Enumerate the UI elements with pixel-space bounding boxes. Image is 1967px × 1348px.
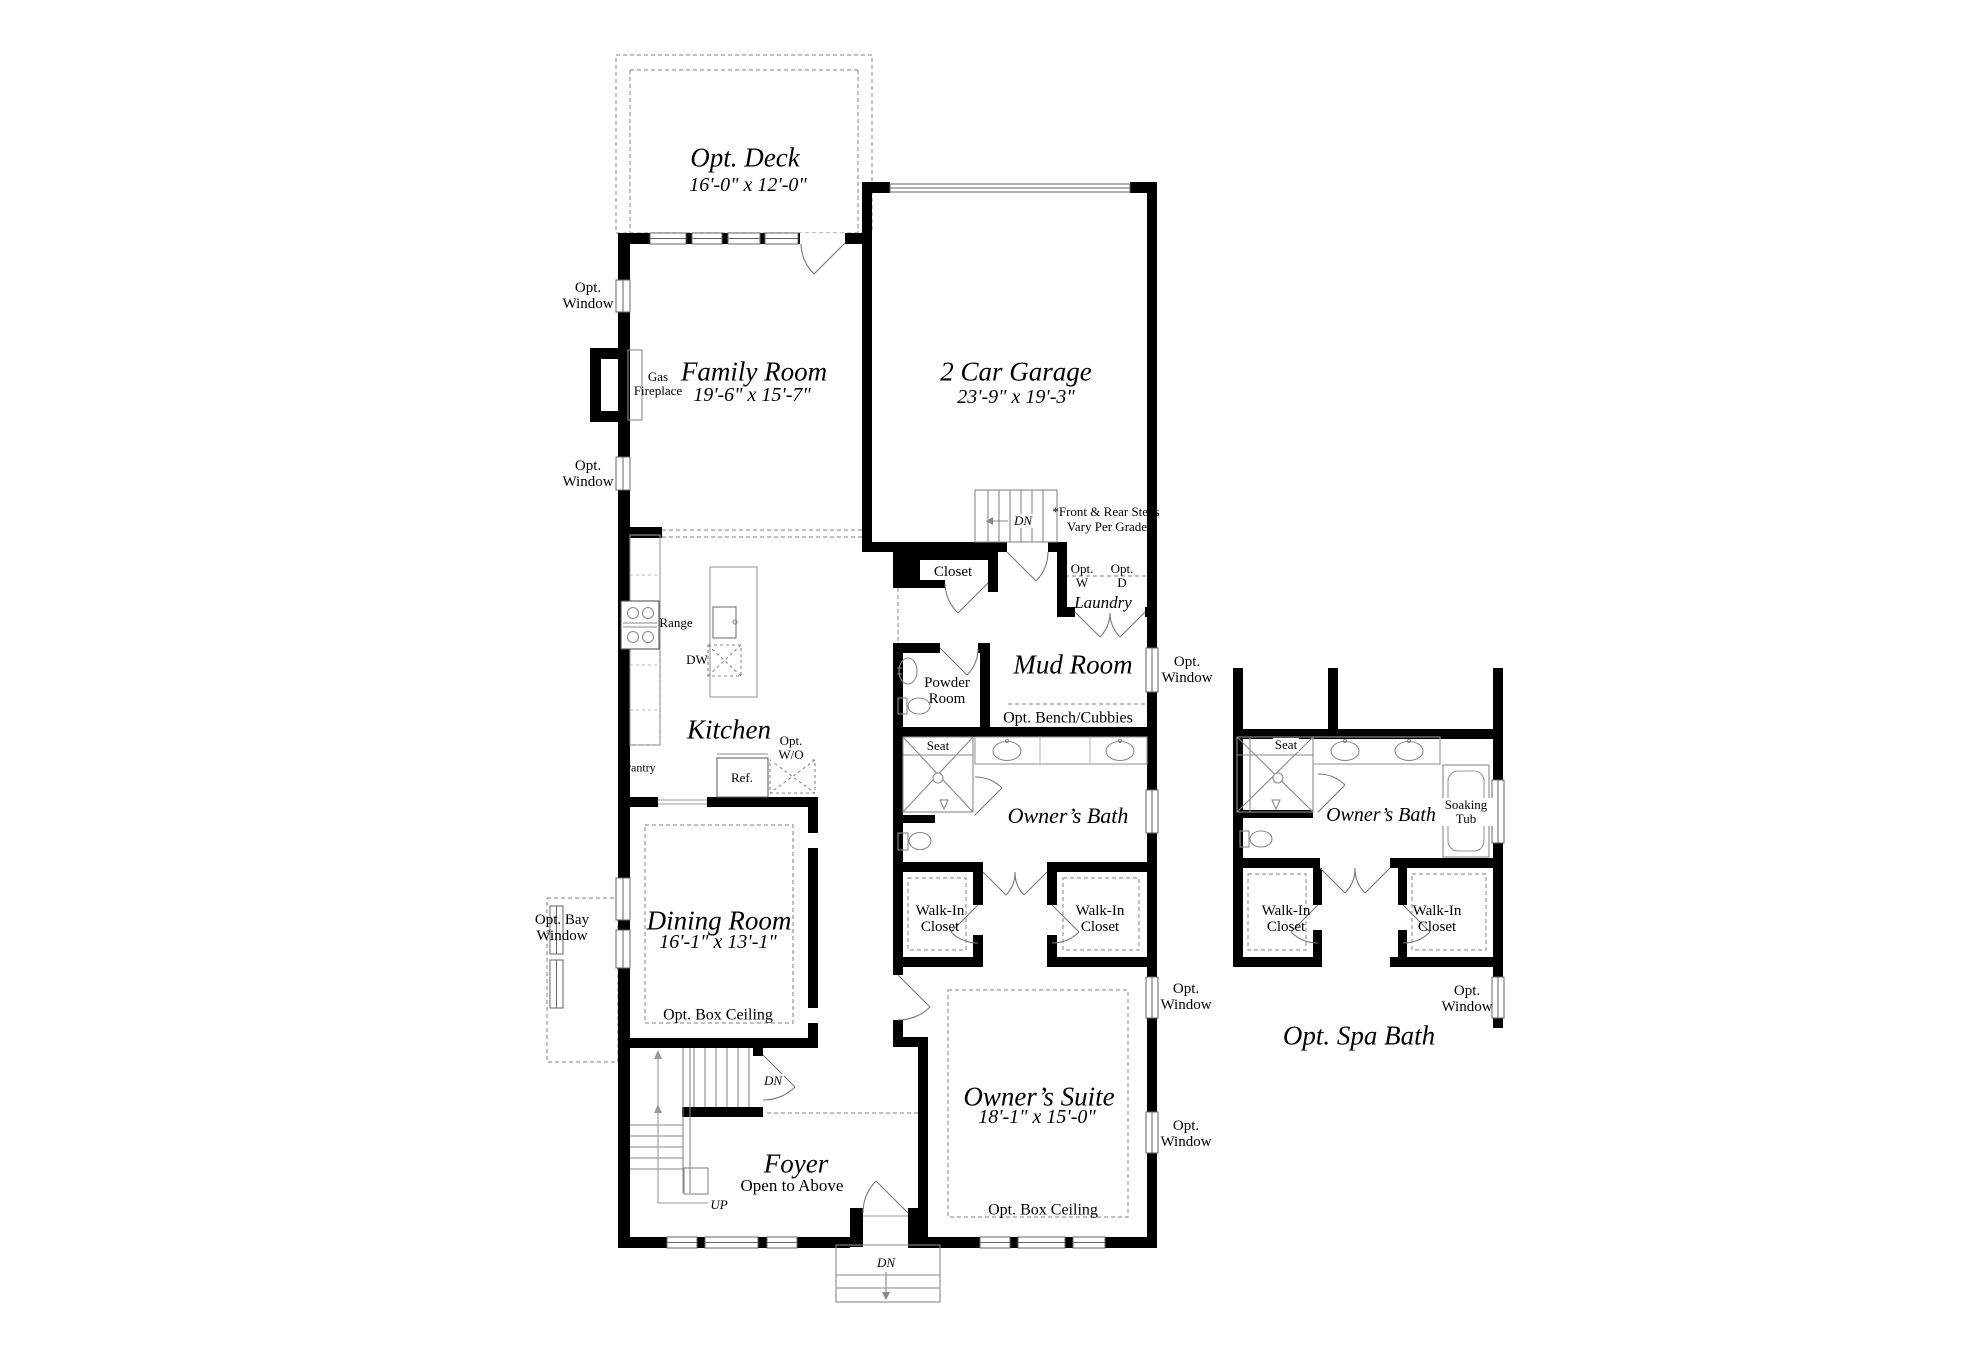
room-label-family-room: Family Room — [681, 357, 827, 386]
soaking-tub-label: Soaking Tub — [1437, 798, 1495, 826]
opt-window-label: Opt. Window — [560, 458, 616, 490]
room-label-laundry: Laundry — [1074, 594, 1132, 612]
room-label-spa-owners-bath: Owner’s Bath — [1326, 805, 1436, 827]
dryer-label: Opt. D — [1106, 562, 1138, 590]
pantry-label: Pantry — [624, 762, 655, 775]
opt-window-label: Opt. Window — [1439, 983, 1495, 1015]
steps-note-line2: Vary Per Grade — [1067, 520, 1147, 534]
dims-label-dining-room: 16'-1" x 13'-1" — [659, 932, 777, 954]
walk-in-closet-label: Walk-In Closet — [1069, 903, 1131, 935]
garage-door — [890, 184, 1130, 192]
walk-in-closet-label: Walk-In Closet — [1406, 903, 1468, 935]
range — [621, 601, 659, 649]
walk-in-closet-label: Walk-In Closet — [1255, 903, 1317, 935]
basement-stairs — [683, 1048, 749, 1194]
down-label-garage-steps: DN — [1012, 514, 1034, 528]
opt-window-label: Opt. Window — [1158, 1118, 1214, 1150]
stairs — [630, 490, 1057, 1302]
floor-plan-drawing — [0, 0, 1967, 1348]
room-label-mud-room: Mud Room — [1013, 650, 1132, 679]
wall-oven-label: Opt. W/O — [771, 734, 811, 762]
seat-label-spa-bath: Seat — [1273, 738, 1299, 752]
opt-box-ceiling-label-suite: Opt. Box Ceiling — [988, 1201, 1098, 1218]
floor-plan: Opt. Deck 16'-0" x 12'-0" Opt. Window Op… — [0, 0, 1967, 1348]
walk-in-closet-label: Walk-In Closet — [909, 903, 971, 935]
dims-label-owners-suite: 18'-1" x 15'-0" — [978, 1107, 1096, 1129]
opt-window-label: Opt. Window — [1159, 654, 1215, 686]
room-label-closet: Closet — [934, 564, 972, 580]
room-label-powder-room: Powder Room — [920, 675, 974, 707]
opt-window-label: Opt. Window — [560, 280, 616, 312]
opt-window-label: Opt. Window — [1158, 981, 1214, 1013]
opt-bench-cubbies-label: Opt. Bench/Cubbies — [1003, 709, 1133, 726]
room-label-kitchen: Kitchen — [687, 715, 771, 744]
room-label-owners-bath: Owner’s Bath — [1008, 804, 1129, 828]
wall-oven — [770, 760, 815, 793]
dims-label-deck: 16'-0" x 12'-0" — [689, 175, 807, 197]
down-label-porch-steps: DN — [875, 1256, 897, 1270]
dims-label-family-room: 19'-6" x 15'-7" — [693, 385, 811, 407]
spa-bath-title: Opt. Spa Bath — [1283, 1021, 1435, 1050]
porch-steps — [836, 1245, 940, 1302]
refrigerator-label: Ref. — [731, 771, 753, 785]
washer-label: Opt. W — [1066, 562, 1098, 590]
down-label-basement-stairs: DN — [762, 1074, 784, 1088]
steps-note-line1: *Front & Rear Steps — [1052, 505, 1159, 519]
dims-label-garage: 23'-9" x 19'-3" — [957, 387, 1075, 409]
foyer-stairs — [630, 1050, 712, 1203]
opt-bay-window-label: Opt. Bay Window — [530, 912, 594, 944]
room-label-foyer: Foyer — [764, 1149, 828, 1178]
room-label-garage: 2 Car Garage — [940, 357, 1092, 386]
seat-label-main-bath: Seat — [925, 739, 951, 753]
opt-box-ceiling-label-dining: Opt. Box Ceiling — [663, 1006, 773, 1023]
range-label: Range — [659, 616, 692, 630]
foyer-note-label: Open to Above — [741, 1177, 844, 1195]
main-bath-fixtures — [898, 737, 1147, 850]
room-label-deck: Opt. Deck — [690, 143, 799, 172]
kitchen-island — [708, 567, 757, 697]
up-label-foyer-stairs: UP — [708, 1198, 729, 1212]
dishwasher-label: DW — [686, 653, 708, 667]
